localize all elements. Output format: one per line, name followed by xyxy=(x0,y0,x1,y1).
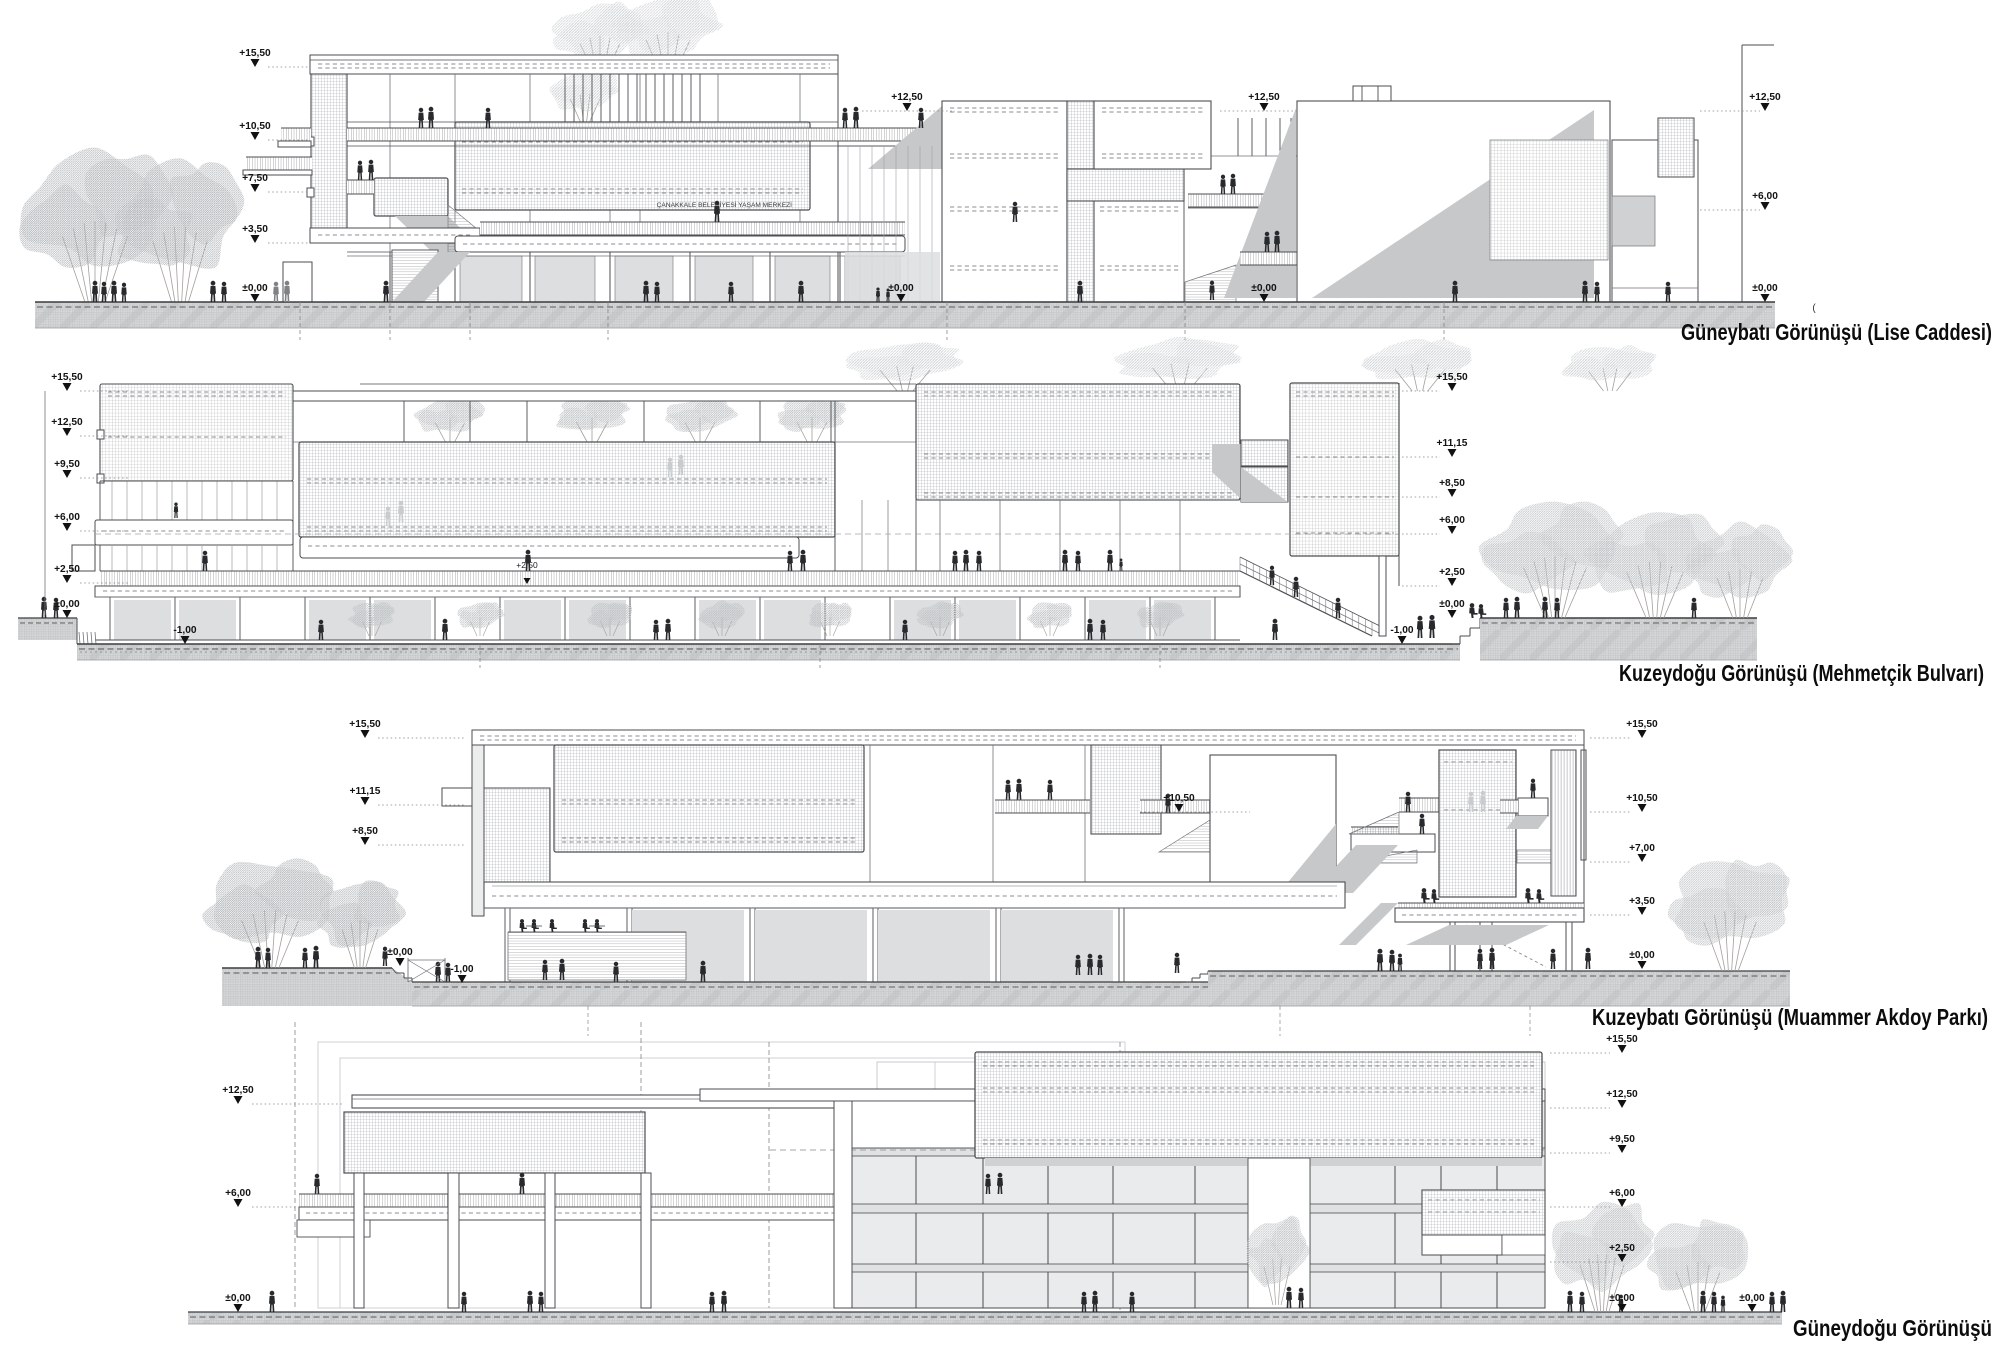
svg-text:ÇANAKKALE BELEDİYESİ YAŞAM MER: ÇANAKKALE BELEDİYESİ YAŞAM MERKEZİ xyxy=(657,200,793,209)
svg-text:+8,50: +8,50 xyxy=(352,826,378,837)
svg-text:+10,50: +10,50 xyxy=(239,121,271,132)
svg-text:+9,50: +9,50 xyxy=(54,459,80,470)
svg-text:+15,50: +15,50 xyxy=(1626,719,1658,730)
svg-text:Kuzeydoğu Görünüşü (Mehmetçik: Kuzeydoğu Görünüşü (Mehmetçik Bulvarı) xyxy=(1619,660,1984,686)
svg-text:±0,00: ±0,00 xyxy=(1251,283,1277,294)
svg-text:+12,50: +12,50 xyxy=(1749,92,1781,103)
svg-text:±0,00: ±0,00 xyxy=(1752,283,1778,294)
svg-text:±0,00: ±0,00 xyxy=(1629,950,1655,961)
svg-text:+9,50: +9,50 xyxy=(1609,1134,1635,1145)
svg-text:±0,00: ±0,00 xyxy=(242,283,268,294)
svg-text:+15,50: +15,50 xyxy=(349,719,381,730)
svg-text:±0,00: ±0,00 xyxy=(225,1293,251,1304)
svg-text:+10,50: +10,50 xyxy=(1163,793,1195,804)
svg-text:-1,00: -1,00 xyxy=(1390,625,1414,636)
svg-text:±0,00: ±0,00 xyxy=(888,283,914,294)
svg-text:Güneydoğu Görünüşü: Güneydoğu Görünüşü xyxy=(1793,1315,1992,1341)
svg-text:Güneybatı Görünüşü (Lise Cadde: Güneybatı Görünüşü (Lise Caddesi) xyxy=(1681,319,1992,345)
svg-text:+12,50: +12,50 xyxy=(222,1085,254,1096)
svg-text:±0,00: ±0,00 xyxy=(1609,1293,1635,1304)
svg-text:+6,00: +6,00 xyxy=(1609,1188,1635,1199)
svg-text:+10,50: +10,50 xyxy=(1626,793,1658,804)
svg-text:+15,50: +15,50 xyxy=(239,48,271,59)
svg-text:+15,50: +15,50 xyxy=(1606,1034,1638,1045)
svg-text:+12,50: +12,50 xyxy=(891,92,923,103)
svg-text:-1,00: -1,00 xyxy=(450,964,474,975)
svg-text:+7,00: +7,00 xyxy=(1629,843,1655,854)
svg-text:±0,00: ±0,00 xyxy=(1739,1293,1765,1304)
svg-text:+2,50: +2,50 xyxy=(1439,567,1465,578)
svg-text:+12,50: +12,50 xyxy=(1248,92,1280,103)
svg-text:+12,50: +12,50 xyxy=(1606,1089,1638,1100)
svg-text:-1,00: -1,00 xyxy=(173,625,197,636)
svg-text:+15,50: +15,50 xyxy=(1436,372,1468,383)
svg-text:+8,50: +8,50 xyxy=(1439,478,1465,489)
svg-text:+11,15: +11,15 xyxy=(350,786,381,797)
svg-text:+6,00: +6,00 xyxy=(1439,515,1465,526)
svg-text:+7,50: +7,50 xyxy=(242,173,268,184)
svg-text:±0,00: ±0,00 xyxy=(387,947,413,958)
svg-text:Kuzeybatı Görünüşü (Muammer Ak: Kuzeybatı Görünüşü (Muammer Akdoy Parkı) xyxy=(1592,1004,1988,1030)
svg-text:±0,00: ±0,00 xyxy=(54,599,80,610)
svg-text:±0,00: ±0,00 xyxy=(1439,599,1465,610)
svg-text:+6,00: +6,00 xyxy=(1752,191,1778,202)
svg-text:+3,50: +3,50 xyxy=(1629,896,1655,907)
svg-text:+2,50: +2,50 xyxy=(54,564,80,575)
svg-text:+12,50: +12,50 xyxy=(51,417,83,428)
svg-text:+2,50: +2,50 xyxy=(1609,1243,1635,1254)
svg-text:+6,00: +6,00 xyxy=(225,1188,251,1199)
svg-text:+15,50: +15,50 xyxy=(51,372,83,383)
svg-text:+6,00: +6,00 xyxy=(54,512,80,523)
svg-text:+11,15: +11,15 xyxy=(1437,438,1468,449)
svg-text:+3,50: +3,50 xyxy=(242,224,268,235)
